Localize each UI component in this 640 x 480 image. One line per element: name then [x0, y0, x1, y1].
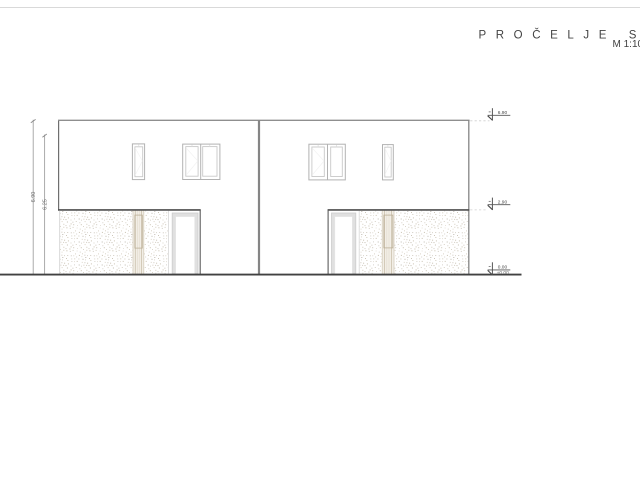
svg-text:6.90: 6.90 — [498, 110, 508, 116]
svg-text:M 1:100: M 1:100 — [613, 39, 640, 50]
svg-text:±0.00: ±0.00 — [497, 270, 509, 276]
svg-text:2.90: 2.90 — [498, 199, 508, 205]
svg-text:0.00: 0.00 — [498, 264, 508, 270]
svg-text:6.25: 6.25 — [42, 199, 48, 210]
svg-text:6.90: 6.90 — [31, 192, 37, 203]
